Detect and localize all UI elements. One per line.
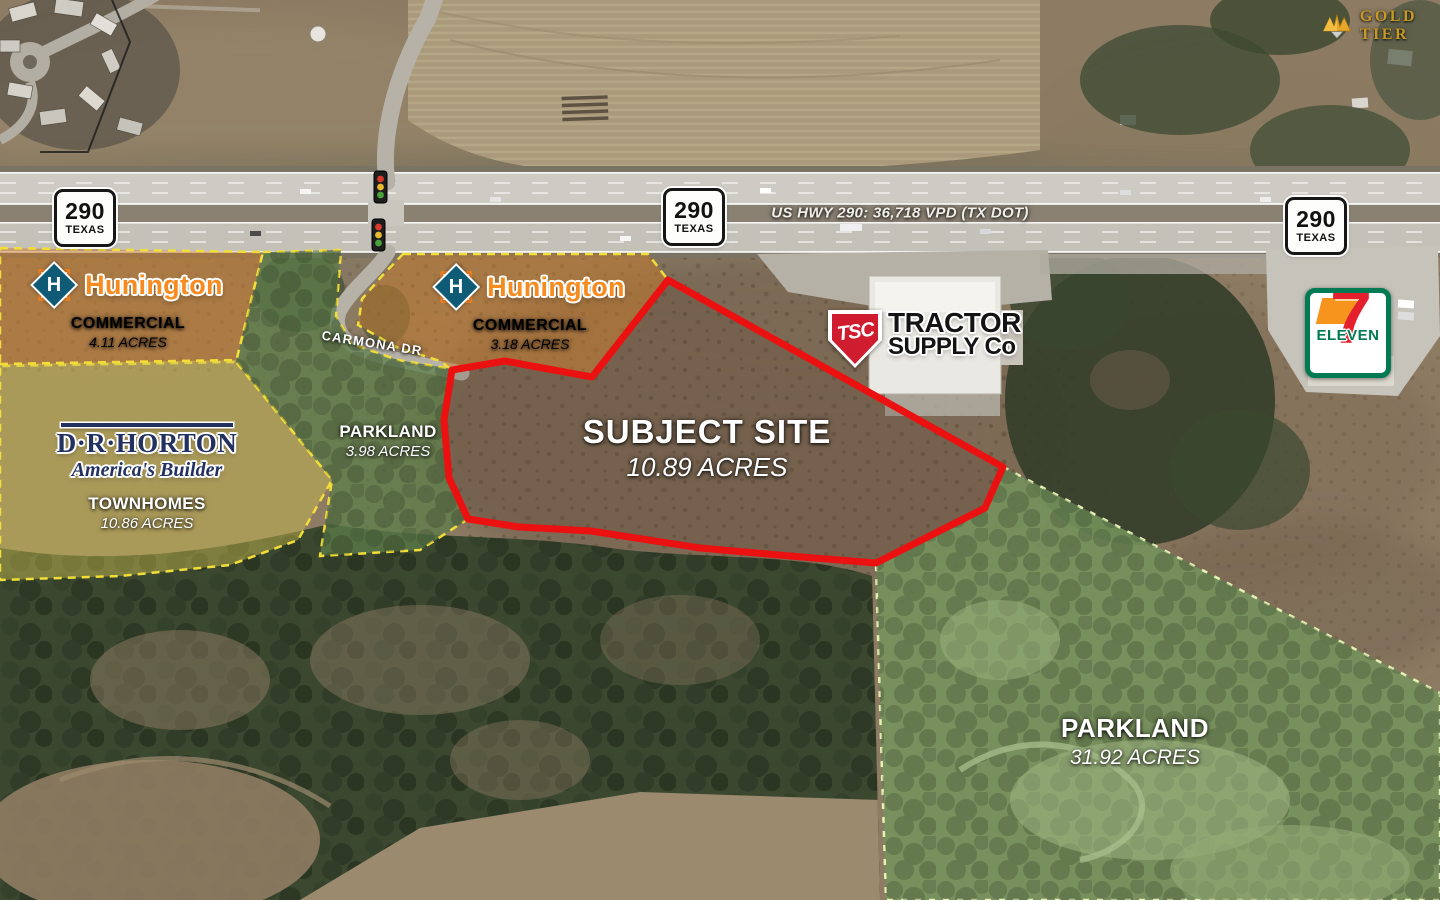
parcel-acreage: 4.11 ACRES (33, 334, 223, 350)
site-plan-map: GOLD TIER 290 TEXAS 290 TEXAS 290 TEXAS … (0, 0, 1440, 900)
subject-site-label: SUBJECT SITE 10.89 ACRES (583, 413, 832, 483)
parcel-acreage: 31.92 ACRES (1061, 746, 1209, 770)
parcel-label-hunington-west: H Hunington COMMERCIAL 4.11 ACRES (33, 264, 223, 350)
tsc-shield-icon: TSC (828, 310, 882, 368)
forest (0, 524, 880, 900)
seven-eleven-wordmark: ELEVEN (1310, 327, 1386, 344)
subject-site-title: SUBJECT SITE (583, 413, 832, 451)
parcel-label-parkland-east: PARKLAND 31.92 ACRES (1061, 714, 1209, 770)
parcel-type: PARKLAND (1061, 714, 1209, 744)
parcel-acreage: 3.18 ACRES (435, 336, 625, 352)
gold-tier-label: GOLD TIER (1360, 8, 1440, 44)
traffic-signal-icon (374, 171, 387, 203)
tractor-supply-name-line2: SUPPLY Co (888, 336, 1021, 358)
route-shield-290-east: 290 TEXAS (1285, 197, 1347, 255)
tractor-supply-logo: TSC TRACTOR SUPPLY Co (828, 310, 1021, 368)
seven-eleven-logo: 7 ELEVEN (1305, 288, 1391, 378)
route-shield-290-west: 290 TEXAS (54, 189, 116, 247)
seven-eleven-digit: 7 (1316, 288, 1386, 356)
hunington-wordmark: Hunington (85, 270, 223, 301)
subject-site-acreage: 10.89 ACRES (583, 453, 832, 483)
drhorton-wordmark: D·R·HORTON (47, 430, 247, 457)
traffic-count-label: US HWY 290: 36,718 VPD (TX DOT) (771, 204, 1028, 221)
parcel-acreage: 10.86 ACRES (88, 515, 206, 532)
parcel-acreage: 3.98 ACRES (339, 443, 436, 460)
gold-tier-badge: GOLD TIER (1322, 8, 1440, 44)
tractor-supply-name-line1: TRACTOR (888, 310, 1021, 336)
parcel-type: COMMERCIAL (33, 315, 223, 333)
plowed-field (408, 0, 1040, 173)
parcel-type: PARKLAND (339, 422, 436, 442)
route-shield-290-center: 290 TEXAS (663, 188, 725, 246)
drhorton-logo: D·R·HORTON America's Builder (47, 423, 247, 482)
crown-icon (1322, 8, 1352, 44)
drhorton-logo-bar (61, 423, 233, 427)
parcel-label-parkland-west: PARKLAND 3.98 ACRES (339, 422, 436, 460)
parcel-type: COMMERCIAL (435, 317, 625, 335)
hunington-logo-icon: H (435, 266, 477, 308)
parcel-label-hunington-east: H Hunington COMMERCIAL 3.18 ACRES (435, 266, 625, 352)
drhorton-tagline: America's Builder (47, 459, 247, 482)
water-tower (310, 26, 326, 42)
parcel-type: TOWNHOMES (88, 494, 206, 514)
hunington-logo-icon: H (33, 264, 75, 306)
hunington-wordmark: Hunington (487, 272, 625, 303)
parcel-label-townhomes: TOWNHOMES 10.86 ACRES (88, 494, 206, 532)
traffic-signal-icon (372, 219, 385, 251)
